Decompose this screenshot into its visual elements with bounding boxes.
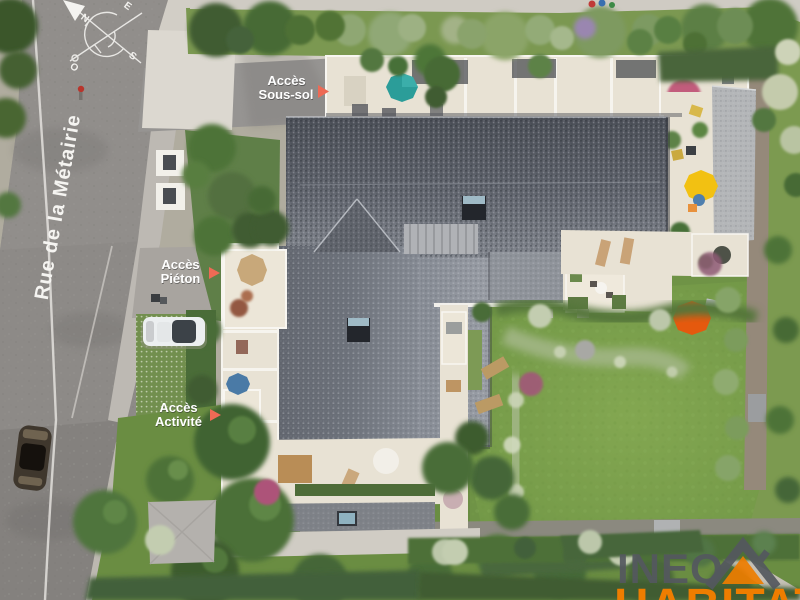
svg-text:Accès: Accès <box>159 400 197 415</box>
svg-text:Piéton: Piéton <box>161 271 201 286</box>
svg-text:Activité: Activité <box>155 414 202 429</box>
svg-text:HABITAT: HABITAT <box>614 580 800 600</box>
svg-text:Accès: Accès <box>161 257 199 272</box>
svg-text:Accès: Accès <box>267 73 305 88</box>
svg-text:Sous-sol: Sous-sol <box>259 87 314 102</box>
